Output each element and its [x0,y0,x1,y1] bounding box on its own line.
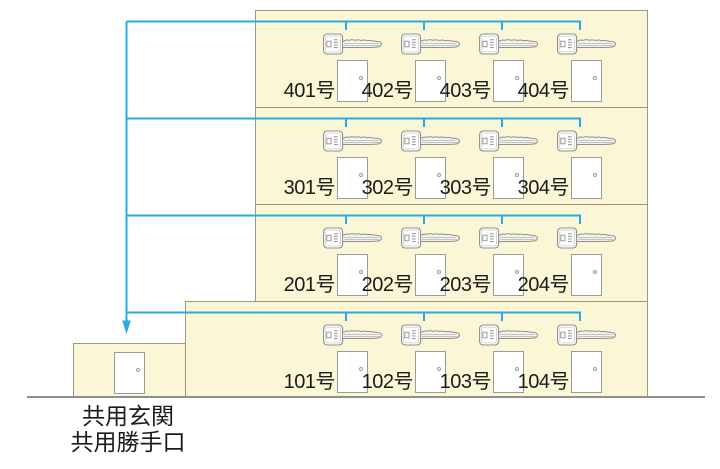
room-number-label: 201号 [247,274,335,296]
doorknob-icon [593,173,597,177]
common-entrance-door-icon [114,352,145,394]
key-icon [557,324,617,346]
room-number-label: 302号 [325,177,413,199]
room-number-label: 404号 [481,80,569,102]
floor-3: 301号302号303号304号 [255,107,648,205]
floor-1: 101号102号103号104号 [185,301,648,397]
doorknob-icon [593,76,597,80]
key-icon [479,130,539,152]
key-icon [557,130,617,152]
doorknob-icon [593,367,597,371]
entrance-labels: 共用玄関 共用勝手口 [56,403,200,455]
key-icon [323,227,383,249]
room-number-label: 401号 [247,80,335,102]
key-icon [479,33,539,55]
floor-4: 401号402号403号404号 [255,10,648,108]
key-icon [323,130,383,152]
key-icon [401,130,461,152]
entrance-label-main: 共用玄関 [56,403,200,429]
entrance-label-back: 共用勝手口 [56,429,200,455]
door-icon [571,351,602,393]
room-number-label: 102号 [325,371,413,393]
room-number-label: 203号 [403,274,491,296]
room-number-label: 101号 [247,371,335,393]
key-icon [479,227,539,249]
door-icon [571,254,602,296]
master-key-diagram: 401号402号403号404号301号302号303号304号201号202号… [0,0,720,469]
key-icon [401,227,461,249]
key-icon [557,33,617,55]
room-number-label: 403号 [403,80,491,102]
room-number-label: 303号 [403,177,491,199]
ground-line [27,396,705,398]
room-number-label: 301号 [247,177,335,199]
common-entrance-building [73,343,186,398]
key-icon [323,33,383,55]
room-number-label: 304号 [481,177,569,199]
key-icon [401,324,461,346]
arrow-down-icon [122,321,131,335]
doorknob-icon [136,368,140,372]
key-icon [401,33,461,55]
room-number-label: 104号 [481,371,569,393]
key-icon [557,227,617,249]
floor-2: 201号202号203号204号 [255,204,648,302]
room-number-label: 103号 [403,371,491,393]
key-icon [479,324,539,346]
room-number-label: 202号 [325,274,413,296]
door-icon [571,157,602,199]
room-number-label: 402号 [325,80,413,102]
doorknob-icon [593,270,597,274]
room-number-label: 204号 [481,274,569,296]
door-icon [571,60,602,102]
key-icon [323,324,383,346]
